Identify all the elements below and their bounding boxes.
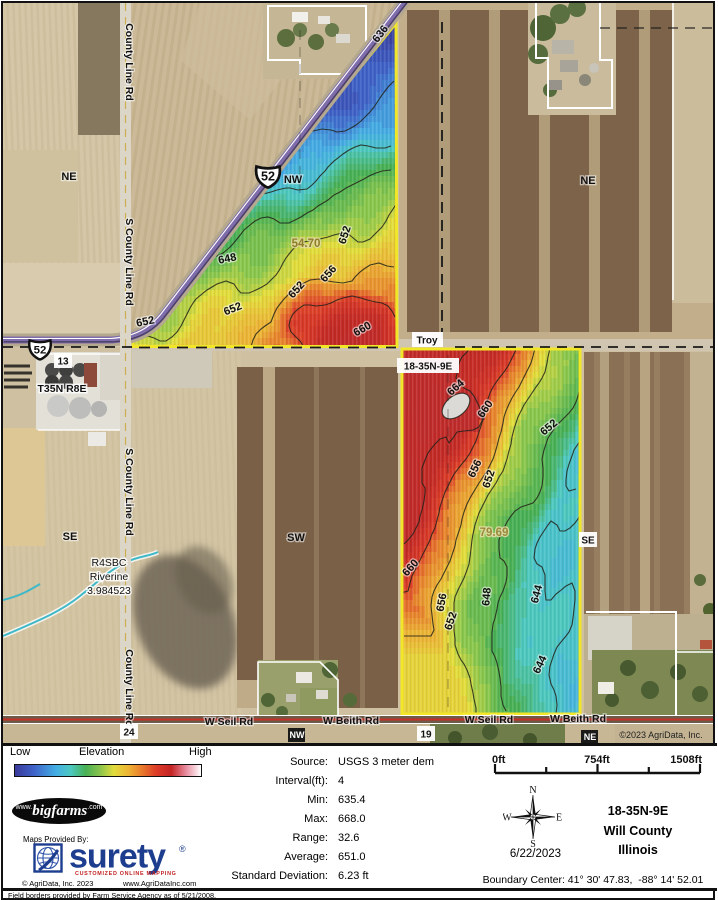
svg-text:1508ft: 1508ft	[670, 754, 702, 766]
svg-text:N: N	[529, 785, 536, 796]
svg-text:E: E	[556, 813, 562, 824]
svg-text:754ft: 754ft	[584, 754, 610, 766]
svg-text:0ft: 0ft	[492, 754, 506, 766]
svg-text:W: W	[503, 813, 512, 824]
